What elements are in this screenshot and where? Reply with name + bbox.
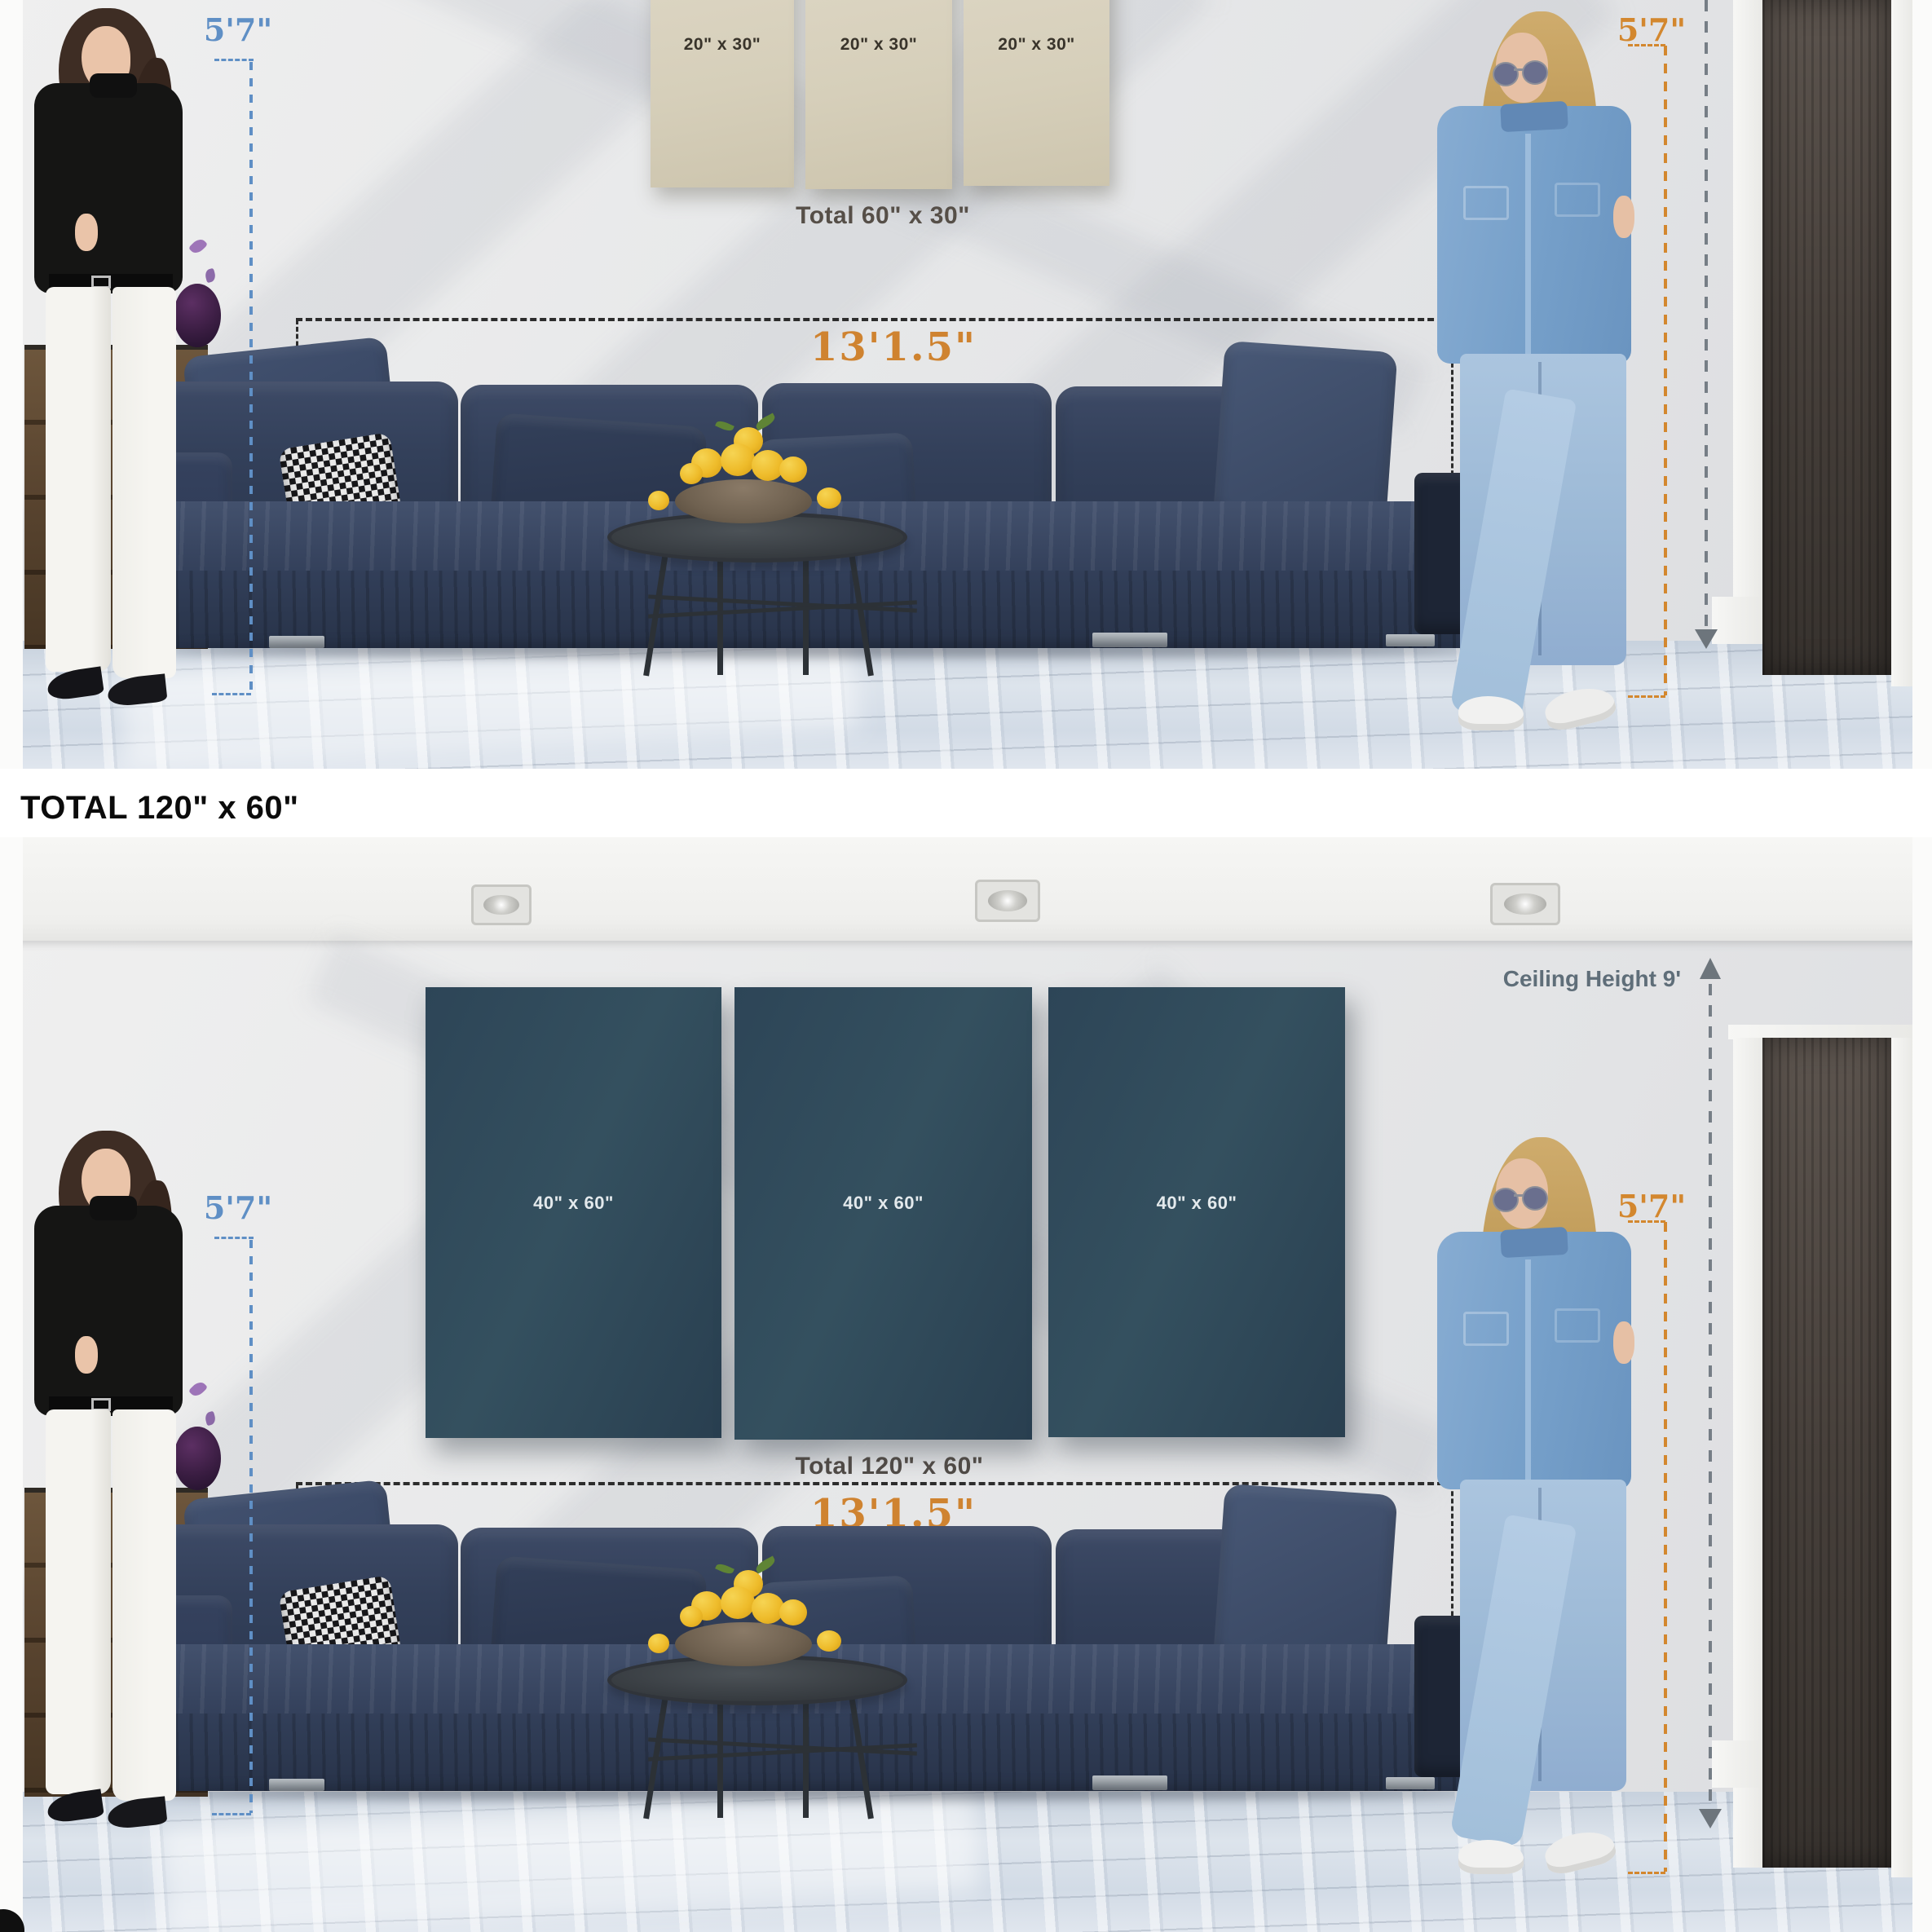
hand [1613,1321,1634,1364]
height-label-left: 5'7" [189,11,287,48]
pants-leg [112,1409,176,1801]
wood-door [1762,1038,1891,1868]
height-tick [1628,1220,1665,1223]
ceiling-light [975,880,1040,922]
height-tick [1628,1872,1665,1874]
fruit [779,457,807,483]
jacket-collar [1500,101,1568,132]
hand [75,214,98,251]
photo-edge-right [1912,837,1932,1932]
sunglasses-lens [1493,62,1519,86]
height-tick [1628,44,1665,46]
ceiling [0,837,1932,941]
height-line-left [249,62,253,693]
sofa-shadow [147,642,1484,657]
canvas-panel-size-label: 20" x 30" [805,35,952,55]
height-line-left [249,1240,253,1813]
baseboard [1712,1740,1762,1788]
fruit [817,487,841,509]
door-frame-right [1891,0,1912,686]
door-frame-left [1733,0,1762,644]
canvas-panel-size-label: 20" x 30" [651,35,794,55]
denim-jacket [1437,106,1631,364]
hand [75,1336,98,1374]
ceiling-light [471,884,532,925]
hand [1613,196,1634,238]
height-line-right [1664,1222,1667,1872]
wall-art-size-guide: 20" x 30" 20" x 30" 20" x 30" Total 60" … [0,0,1932,1932]
blouse [34,1206,183,1416]
sneaker [1458,1840,1524,1874]
height-label-right: 5'7" [1603,1188,1700,1224]
fruit [680,1606,703,1627]
canvas-panel-1: 20" x 30" [651,0,794,187]
canvas-panel-size-label: 40" x 60" [426,1193,721,1214]
total-size-label: Total 60" x 30" [761,202,1005,230]
woman-right [1431,1137,1712,1887]
height-line-right [1664,46,1667,695]
jacket-pocket [1463,1312,1509,1346]
height-tick [1628,695,1665,698]
canvas-panel-size-label: 40" x 60" [734,1193,1032,1214]
jacket-collar [1500,1227,1568,1258]
canvas-panel-size-label: 40" x 60" [1048,1193,1345,1214]
fruit [817,1630,841,1652]
height-label-right: 5'7" [1603,11,1700,48]
sneaker [1542,681,1618,733]
jacket-button-strip [1525,134,1531,355]
photo-edge-left [0,837,23,1932]
canvas-panel-2: 20" x 30" [805,0,952,189]
woman-left [24,1131,200,1832]
fruit [648,1634,669,1653]
ceiling-light [1490,883,1560,925]
woman-left [24,8,200,709]
jacket-pocket [1463,186,1509,220]
fruit [721,443,755,476]
room-scene-60x30: 20" x 30" 20" x 30" 20" x 30" Total 60" … [0,0,1932,769]
fruit-bowl [675,1622,812,1666]
section-divider: TOTAL 120" x 60" [0,769,1932,837]
sunglasses-lens [1522,60,1548,85]
pants-leg [112,287,176,678]
woman-right [1431,11,1712,745]
sofa-width-measure-line [296,1482,1453,1485]
fruit-bowl [675,479,812,523]
fruit [779,1599,807,1625]
jacket-button-strip [1525,1259,1531,1481]
denim-jacket [1437,1232,1631,1489]
sofa-foot [1386,1777,1435,1789]
jacket-pocket [1555,183,1600,217]
height-tick [212,1813,251,1815]
room-scene-120x60: Ceiling Height 9' 40" x 60" 40" x 60" 40… [0,837,1932,1932]
sunglasses-bridge [1514,1194,1524,1197]
sneaker [1458,696,1524,730]
sneaker [1542,1825,1618,1877]
canvas-panel-2: 40" x 60" [734,987,1032,1440]
blouse [34,83,183,293]
blouse-collar [90,1196,137,1220]
wall-height-line [1705,0,1708,636]
photo-edge-right [1912,0,1932,769]
shoe [106,1796,167,1829]
height-tick [212,693,251,695]
section-title: TOTAL 120" x 60" [20,790,299,827]
wood-door [1762,0,1891,675]
fruit [721,1586,755,1619]
fruit [648,491,669,510]
blouse-collar [90,73,137,98]
arrow-up-icon [1700,958,1721,979]
jacket-pocket [1555,1308,1600,1343]
sofa-foot [1386,634,1435,646]
light-bulb [483,895,519,915]
canvas-panel-3: 40" x 60" [1048,987,1345,1437]
canvas-panel-size-label: 20" x 30" [964,35,1109,55]
sunglasses-lens [1493,1188,1519,1212]
sofa-width-measure-line [296,318,1453,321]
canvas-panel-1: 40" x 60" [426,987,721,1438]
height-label-left: 5'7" [189,1189,287,1226]
baseboard [1712,597,1762,644]
fruit [680,463,703,484]
pants-leg [46,287,111,672]
ceiling-height-label: Ceiling Height 9' [1386,966,1681,992]
sofa-width-label: 13'1.5" [771,324,1016,370]
arrow-down-icon [1695,629,1718,649]
shoe [106,673,167,707]
pants-leg [46,1409,111,1794]
light-bulb [1504,893,1546,915]
sunglasses-bridge [1514,68,1524,71]
photo-edge-left [0,0,23,769]
door-frame-right [1891,1038,1912,1877]
height-tick [214,59,254,61]
height-tick [214,1237,254,1239]
sofa-shadow [147,1785,1484,1800]
sunglasses-lens [1522,1186,1548,1211]
total-size-label: Total 120" x 60" [767,1453,1012,1480]
canvas-panel-3: 20" x 30" [964,0,1109,186]
light-bulb [988,890,1026,911]
